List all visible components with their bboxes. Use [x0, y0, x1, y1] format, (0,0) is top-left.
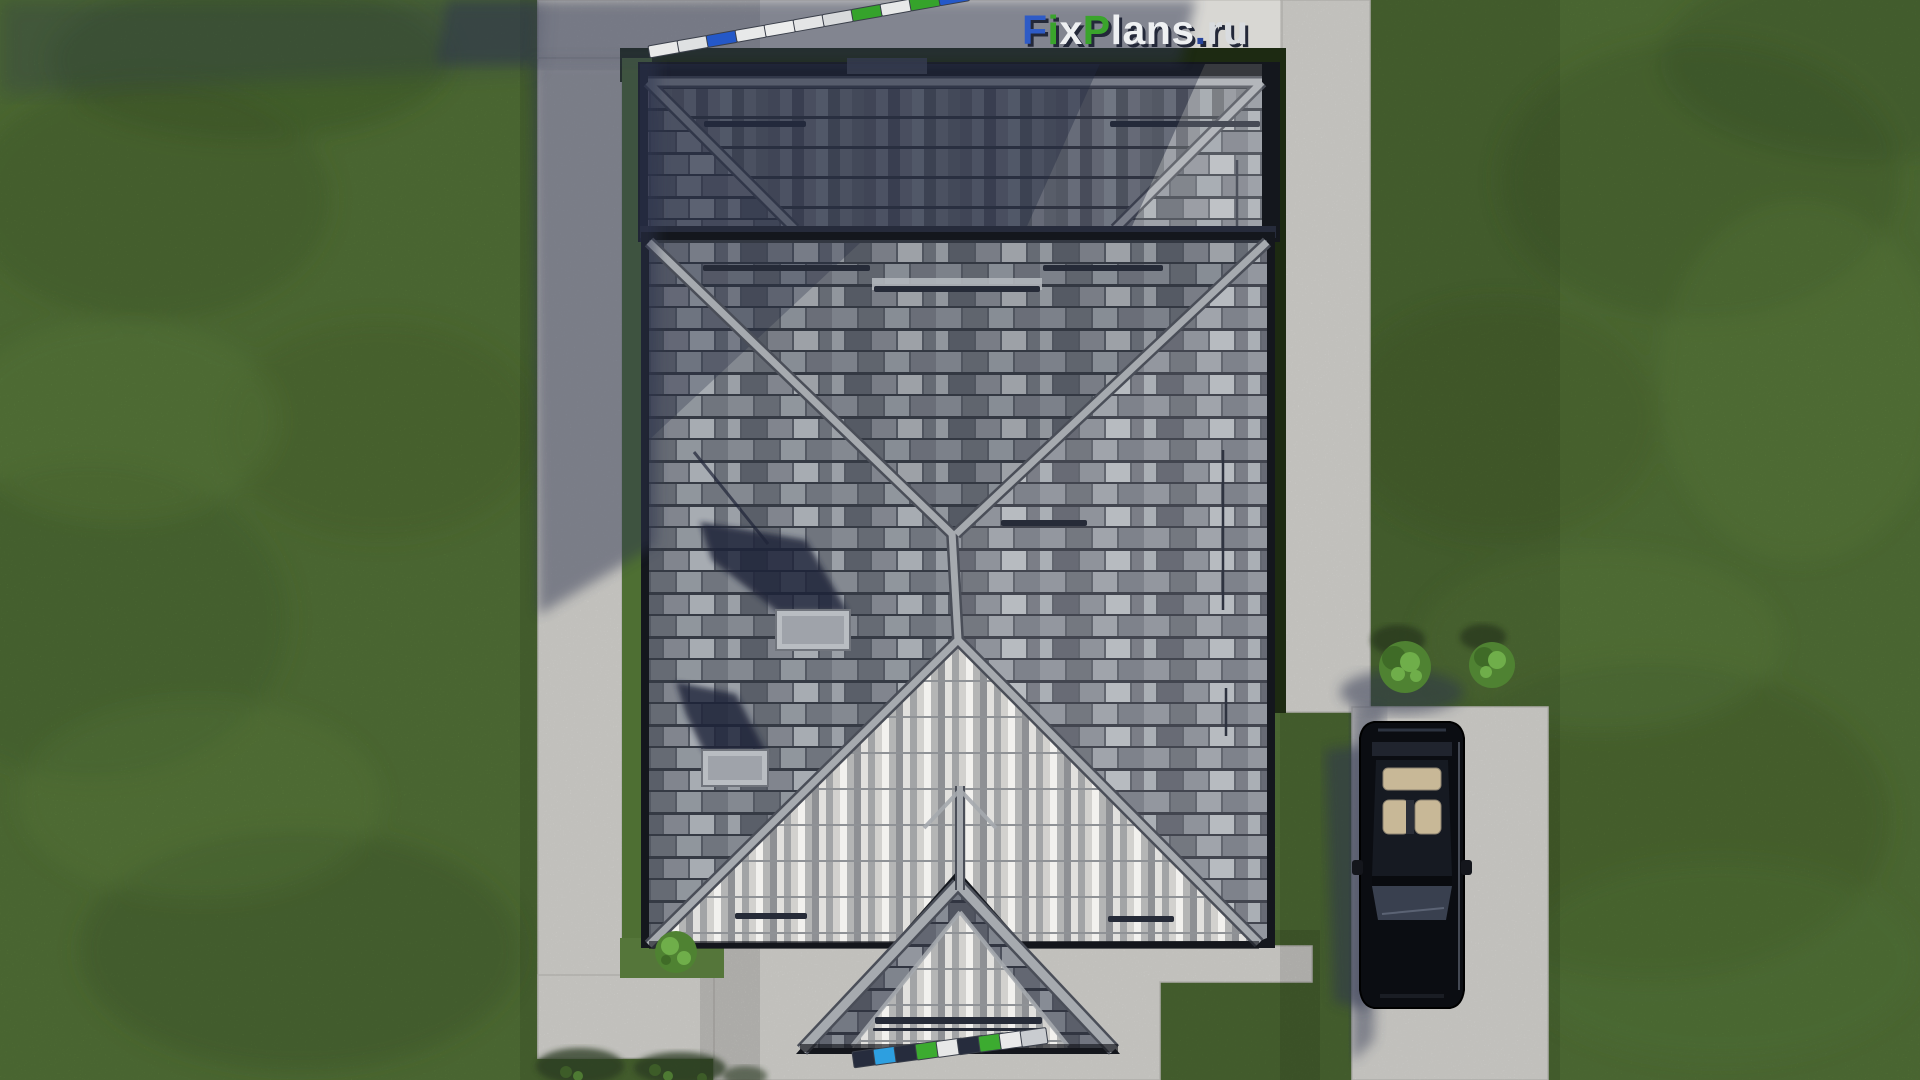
shrub-corner: [655, 931, 697, 973]
car-console: [1406, 800, 1414, 834]
garage-shadow-strong: [640, 64, 1100, 242]
porch-snow-guards: [873, 1017, 1043, 1031]
fence-picket: [1020, 1028, 1048, 1047]
garage-roof: [638, 58, 1280, 242]
car-mirror-left: [1352, 860, 1363, 875]
car-seat-right: [1415, 800, 1441, 834]
car-rear-seat: [1383, 768, 1441, 790]
car-mirror-right: [1461, 860, 1472, 875]
car-cowl: [1372, 876, 1452, 886]
watermark-text: FixPlans.ru: [1022, 7, 1249, 53]
chimney-2: [702, 750, 768, 786]
car-seat-left: [1383, 800, 1409, 834]
car: [1352, 722, 1472, 1008]
chimney-1: [776, 610, 850, 650]
watermark: FixPlans.ru FixPlans.ru: [1022, 7, 1252, 56]
shadow-left-walkway: [532, 60, 658, 615]
car-windshield: [1372, 886, 1452, 920]
render-canvas: FixPlans.ru FixPlans.ru: [0, 0, 1920, 1080]
aerial-house-render: FixPlans.ru FixPlans.ru: [0, 0, 1920, 1080]
car-rear-window: [1372, 742, 1452, 756]
